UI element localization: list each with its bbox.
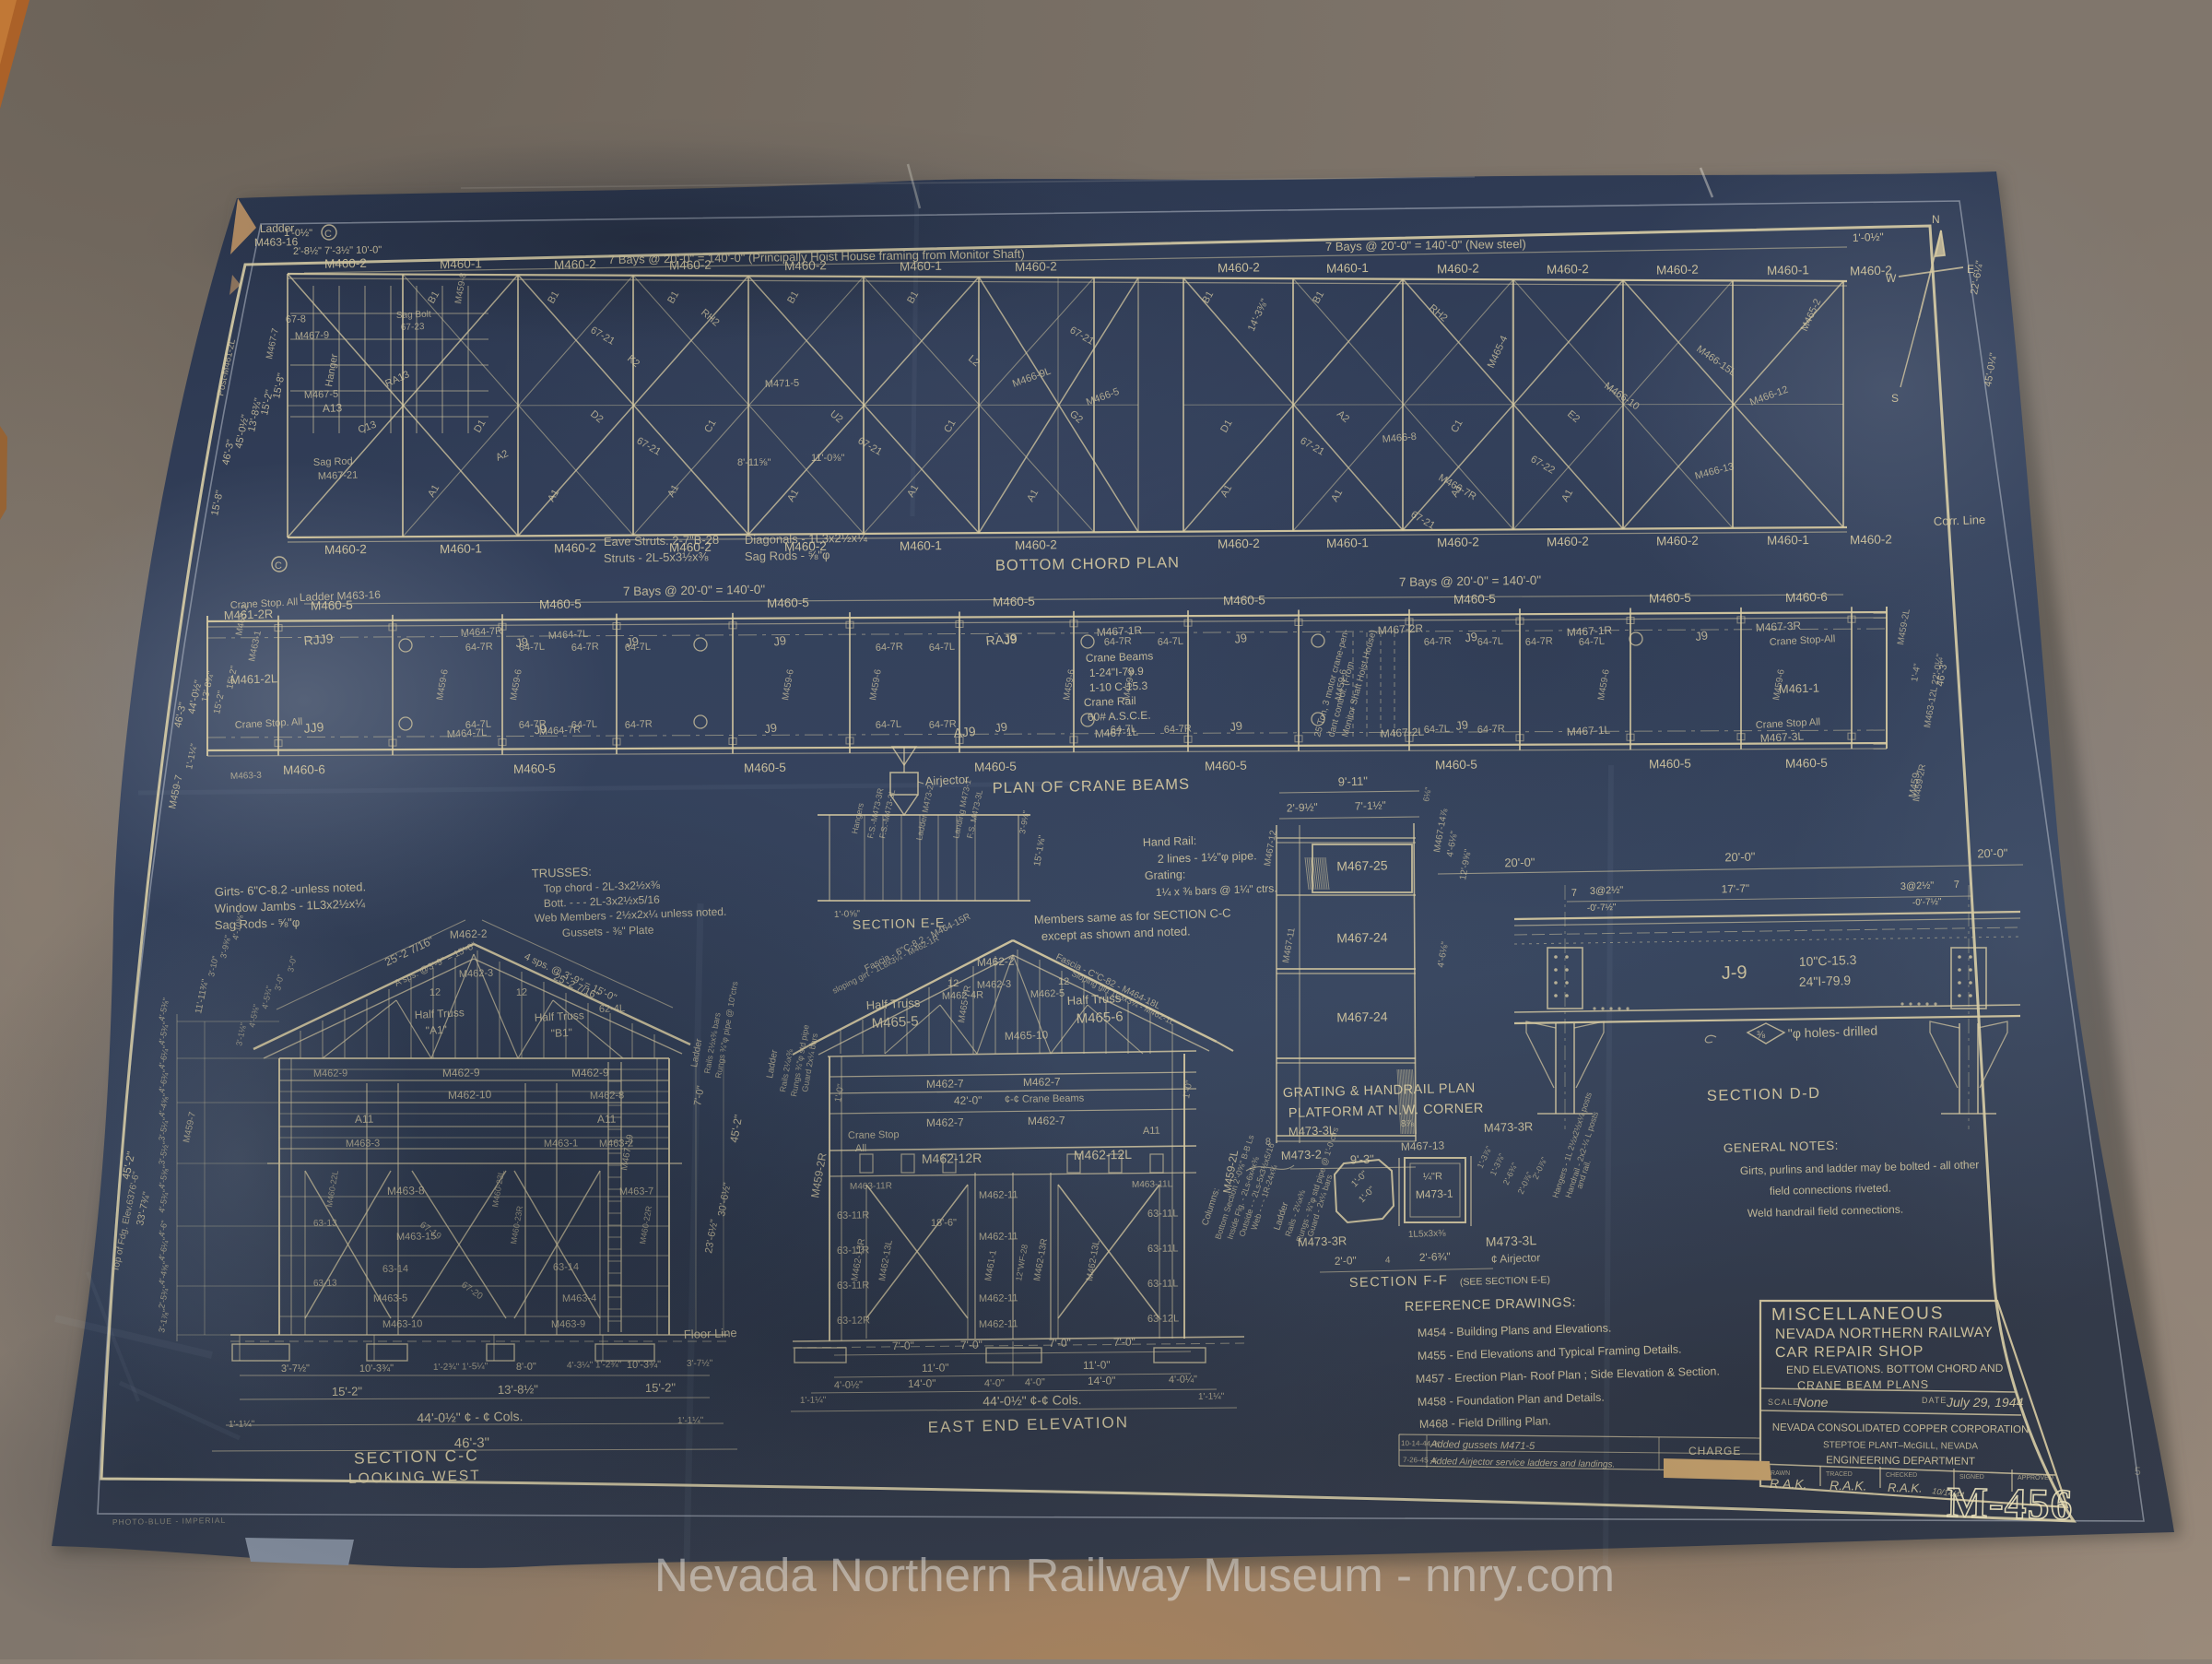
svg-text:N: N	[1932, 213, 1940, 226]
svg-text:M467-1L: M467-1L	[1566, 724, 1610, 738]
svg-text:7 Bays @ 20'-0" = 140'-0" (Ne: 7 Bays @ 20'-0" = 140'-0" (New steel)	[1325, 237, 1526, 254]
svg-text:64-7R: 64-7R	[929, 718, 958, 731]
svg-text:J9: J9	[1454, 717, 1469, 733]
svg-text:J9: J9	[1233, 631, 1248, 646]
svg-text:64-7R: 64-7R	[1525, 635, 1554, 648]
svg-text:7: 7	[1954, 879, 1960, 891]
svg-text:M460-6: M460-6	[1785, 590, 1828, 605]
svg-text:M460-1: M460-1	[900, 538, 942, 553]
svg-text:M460-5: M460-5	[974, 760, 1017, 774]
svg-text:M460-2: M460-2	[1547, 262, 1589, 277]
svg-text:M467-13: M467-13	[1401, 1139, 1445, 1153]
svg-text:64-7R: 64-7R	[1477, 723, 1506, 736]
svg-text:SECTION D-D: SECTION D-D	[1707, 1085, 1821, 1104]
svg-text:8'-11⅝": 8'-11⅝"	[737, 457, 771, 468]
svg-text:M467-9: M467-9	[295, 330, 330, 342]
svg-text:-0'-7½": -0'-7½"	[1912, 897, 1942, 908]
svg-text:M467-5: M467-5	[304, 389, 339, 401]
svg-text:3@2½": 3@2½"	[1590, 885, 1624, 897]
svg-text:M467-2L: M467-2L	[1380, 726, 1424, 740]
svg-text:64-7R: 64-7R	[571, 641, 600, 654]
svg-text:M460-1: M460-1	[1767, 263, 1809, 277]
svg-text:M467-1R: M467-1R	[1096, 623, 1142, 639]
svg-text:9'-11": 9'-11"	[1338, 773, 1369, 788]
svg-text:M460-1: M460-1	[1326, 536, 1369, 550]
svg-text:7 Bays @ 20'-0" = 140'-0": 7 Bays @ 20'-0" = 140'-0"	[1399, 573, 1542, 589]
svg-text:M467-2R: M467-2R	[1377, 621, 1423, 637]
svg-text:M460-2: M460-2	[1437, 535, 1479, 549]
svg-text:JJ9: JJ9	[303, 719, 324, 736]
svg-text:M460-2: M460-2	[1547, 534, 1589, 549]
svg-text:S: S	[1891, 392, 1899, 405]
svg-text:Struts - 2L-5x3½x⅜: Struts - 2L-5x3½x⅜	[604, 549, 709, 565]
svg-text:64-7L: 64-7L	[625, 642, 652, 654]
svg-text:W: W	[1886, 272, 1897, 285]
svg-text:M460-2: M460-2	[1656, 534, 1699, 549]
svg-text:BOTTOM CHORD PLAN: BOTTOM CHORD PLAN	[995, 554, 1180, 573]
svg-text:⅜: ⅜	[1757, 1030, 1766, 1041]
svg-text:M460-5: M460-5	[1785, 756, 1828, 771]
svg-text:M467-1R: M467-1R	[1566, 623, 1612, 639]
svg-text:Eave Struts. 2-7"B-28: Eave Struts. 2-7"B-28	[604, 533, 720, 549]
svg-text:M460-5: M460-5	[744, 761, 786, 775]
svg-text:M460-2: M460-2	[324, 542, 367, 557]
svg-text:M460-5: M460-5	[1649, 591, 1691, 606]
svg-text:M460-5: M460-5	[1435, 758, 1477, 773]
svg-text:RAJ9: RAJ9	[985, 631, 1018, 648]
svg-text:M460-2: M460-2	[1218, 537, 1260, 551]
svg-text:J9: J9	[994, 719, 1008, 735]
svg-text:64-7L: 64-7L	[1158, 636, 1184, 648]
svg-text:M467-3R: M467-3R	[1755, 619, 1801, 634]
svg-text:Sag Rods - ⅝"φ: Sag Rods - ⅝"φ	[745, 548, 830, 563]
svg-text:M467-24: M467-24	[1336, 930, 1388, 946]
svg-text:M460-5: M460-5	[513, 761, 556, 776]
svg-text:1'-0½": 1'-0½"	[1853, 230, 1884, 244]
svg-text:¢ Airjector: ¢ Airjector	[1491, 1251, 1541, 1266]
svg-text:MISCELLANEOUS: MISCELLANEOUS	[1771, 1304, 1945, 1325]
svg-text:M460-5: M460-5	[1223, 593, 1265, 608]
svg-text:¼"R: ¼"R	[1423, 1171, 1442, 1183]
svg-text:64-7L: 64-7L	[1477, 636, 1504, 648]
svg-text:64-7R: 64-7R	[1164, 723, 1193, 736]
svg-text:7'-1½": 7'-1½"	[1355, 798, 1386, 812]
svg-text:17'-7": 17'-7"	[1721, 881, 1749, 895]
svg-text:M467-1L: M467-1L	[1094, 726, 1138, 740]
svg-text:64-7R: 64-7R	[1424, 635, 1453, 648]
svg-text:11'-0⅜": 11'-0⅜"	[811, 453, 844, 464]
svg-text:M467-25: M467-25	[1336, 858, 1388, 874]
svg-text:M460-5: M460-5	[767, 596, 809, 610]
svg-text:M467-21: M467-21	[318, 469, 359, 482]
svg-text:M460-2: M460-2	[1015, 537, 1057, 552]
svg-text:M460-2: M460-2	[1850, 532, 1892, 547]
svg-text:64-7R: 64-7R	[625, 718, 653, 731]
svg-text:8⅞: 8⅞	[1401, 1118, 1415, 1129]
svg-text:Corr. Line: Corr. Line	[1934, 513, 1986, 528]
svg-text:A13: A13	[323, 401, 343, 415]
svg-text:20'-0": 20'-0"	[1724, 850, 1756, 865]
svg-text:Sag Rod: Sag Rod	[313, 456, 353, 468]
svg-text:M467-24: M467-24	[1336, 1009, 1388, 1025]
svg-text:NEVADA NORTHERN RAILWAY: NEVADA NORTHERN RAILWAY	[1775, 1325, 1993, 1342]
svg-text:M473-3L: M473-3L	[1486, 1233, 1537, 1249]
svg-text:20'-0": 20'-0"	[1504, 856, 1535, 870]
svg-text:M464-7L: M464-7L	[548, 629, 589, 642]
svg-text:M473-2: M473-2	[1281, 1147, 1323, 1162]
svg-text:1-24"I-79.9: 1-24"I-79.9	[1089, 665, 1145, 679]
svg-text:RJJ9: RJJ9	[303, 631, 334, 648]
svg-text:M460-2: M460-2	[1656, 263, 1699, 277]
svg-text:3@2½": 3@2½"	[1900, 880, 1935, 892]
svg-text:M460-5: M460-5	[993, 595, 1035, 609]
svg-text:J9: J9	[1694, 628, 1709, 643]
svg-text:Diagonals - 1L3x2½x¼: Diagonals - 1L3x2½x¼	[745, 531, 867, 547]
svg-text:M464-7R: M464-7R	[461, 626, 503, 639]
svg-text:J9: J9	[772, 633, 787, 649]
svg-text:24"I-79.9: 24"I-79.9	[1799, 973, 1852, 989]
svg-text:Crane Rail: Crane Rail	[1084, 694, 1136, 709]
svg-text:M460-1: M460-1	[1767, 533, 1809, 548]
svg-text:M460-5: M460-5	[1649, 757, 1691, 772]
svg-text:20'-0": 20'-0"	[1977, 846, 2008, 861]
svg-text:J9: J9	[1229, 718, 1243, 734]
svg-text:M460-2: M460-2	[1437, 262, 1479, 277]
svg-text:Nevada Northern Railway Museum: Nevada Northern Railway Museum - nnry.co…	[654, 1549, 1615, 1601]
svg-text:M460-1: M460-1	[1326, 261, 1369, 276]
svg-text:C: C	[275, 561, 282, 572]
svg-text:M467-3L: M467-3L	[1759, 730, 1804, 745]
svg-text:-0'-7½": -0'-7½"	[1587, 903, 1617, 914]
svg-text:1-10 C-15.3: 1-10 C-15.3	[1089, 679, 1148, 694]
svg-text:J9: J9	[763, 721, 778, 737]
svg-text:60# A.S.C.E.: 60# A.S.C.E.	[1088, 709, 1151, 724]
svg-text:M460-6: M460-6	[283, 762, 325, 777]
svg-text:10"C-15.3: 10"C-15.3	[1799, 952, 1857, 969]
svg-text:J-9: J-9	[1721, 962, 1747, 984]
svg-text:64-7L: 64-7L	[1424, 724, 1451, 736]
svg-text:"φ holes- drilled: "φ holes- drilled	[1788, 1023, 1878, 1041]
svg-text:M460-1: M460-1	[440, 541, 482, 556]
svg-text:Grating:: Grating:	[1145, 867, 1186, 882]
svg-text:M460-5: M460-5	[1205, 759, 1247, 773]
svg-text:M471-5: M471-5	[765, 378, 800, 390]
svg-text:2'-9½": 2'-9½"	[1287, 800, 1318, 814]
svg-text:9'-3": 9'-3"	[1350, 1152, 1375, 1167]
svg-text:64-7L: 64-7L	[876, 719, 902, 731]
svg-text:Crane Beams: Crane Beams	[1086, 649, 1154, 665]
svg-text:M460-5: M460-5	[539, 596, 582, 611]
svg-text:M464-7R: M464-7R	[539, 725, 582, 738]
svg-text:M473-1: M473-1	[1416, 1187, 1453, 1201]
svg-text:7 Bays @ 20'-0" = 140'-0": 7 Bays @ 20'-0" = 140'-0"	[623, 583, 766, 598]
svg-text:M460-5: M460-5	[1453, 592, 1496, 607]
svg-text:7: 7	[1571, 888, 1578, 899]
svg-text:M463-3: M463-3	[230, 771, 263, 782]
svg-text:64-7R: 64-7R	[465, 641, 494, 654]
svg-text:Hand Rail:: Hand Rail:	[1143, 834, 1197, 849]
svg-text:M473-3R: M473-3R	[1484, 1119, 1534, 1135]
svg-text:A11: A11	[1143, 1126, 1160, 1137]
svg-text:64-7L: 64-7L	[519, 642, 546, 654]
svg-text:M460-2: M460-2	[554, 540, 596, 555]
svg-text:64-7L: 64-7L	[929, 642, 956, 654]
svg-text:M462-5: M462-5	[1030, 988, 1065, 1000]
svg-text:5: 5	[2135, 1465, 2141, 1478]
svg-text:M464-7L: M464-7L	[447, 727, 488, 740]
svg-text:64-7R: 64-7R	[876, 641, 904, 654]
svg-text:12: 12	[1058, 976, 1069, 987]
